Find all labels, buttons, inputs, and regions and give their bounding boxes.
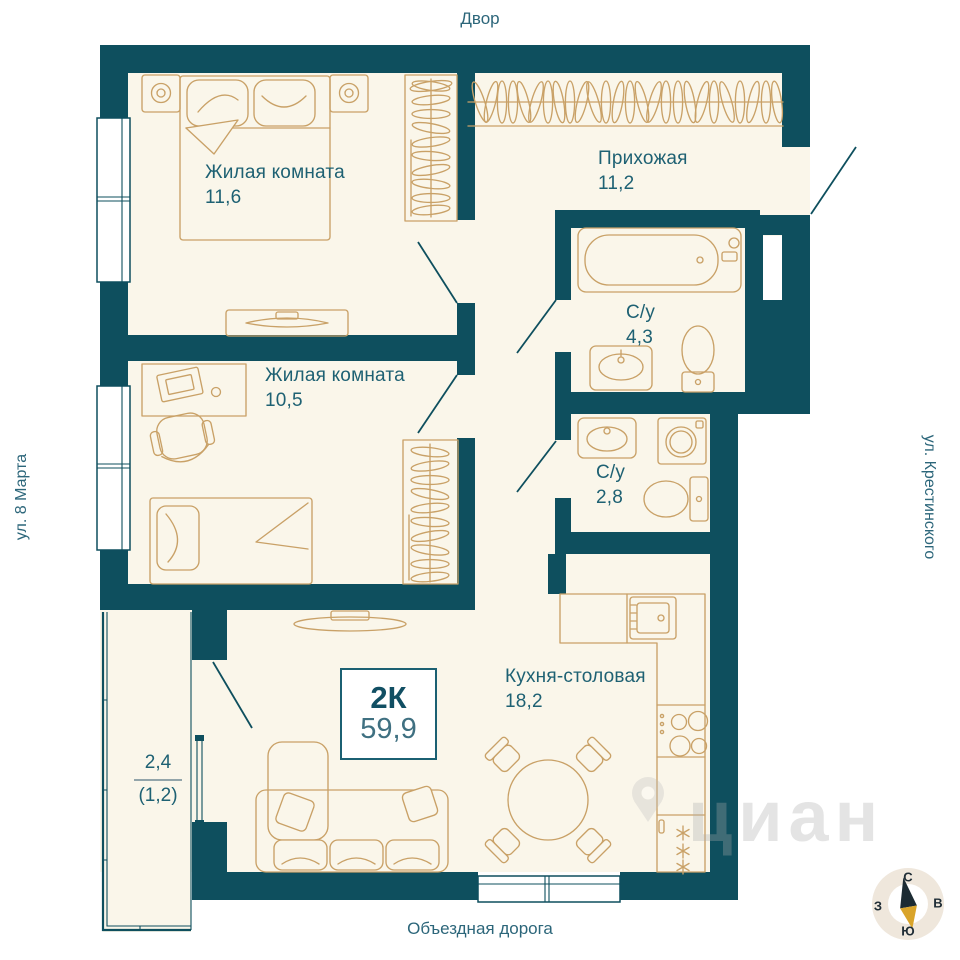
- balcony-area: 2,4: [145, 752, 171, 773]
- room-name: Жилая комната: [265, 363, 405, 388]
- apartment-info-box: 2К 59,9: [340, 668, 437, 760]
- compass-east-label: В: [933, 896, 942, 911]
- room-area: 18,2: [505, 689, 646, 714]
- label-street-left: ул. 8 Марта: [13, 387, 31, 607]
- floor-plan-canvas: [0, 0, 960, 960]
- floor-plan-page: Двор ул. 8 Марта ул. Крестинского Объезд…: [0, 0, 960, 960]
- room-area: 10,5: [265, 388, 405, 413]
- window-bedroom-2: [97, 386, 130, 550]
- room-name: Жилая комната: [205, 160, 345, 185]
- compass-west-label: З: [874, 899, 882, 914]
- compass-north-label: С: [903, 870, 912, 885]
- apartment-total-area: 59,9: [360, 714, 416, 746]
- room-area: 11,6: [205, 185, 345, 210]
- window-kitchen: [478, 876, 620, 902]
- room-name: Кухня-столовая: [505, 664, 646, 689]
- label-courtyard: Двор: [420, 9, 540, 29]
- room-name: С/у: [626, 300, 655, 325]
- label-road-bottom: Объездная дорога: [360, 919, 600, 939]
- dining-table-icon: [508, 760, 588, 840]
- label-street-right: ул. Крестинского: [920, 387, 938, 607]
- compass-south-label: Ю: [901, 924, 914, 939]
- room-area: 4,3: [626, 325, 655, 350]
- room-label-hallway: Прихожая 11,2: [598, 146, 688, 197]
- balcony-area-divider: [134, 779, 182, 781]
- room-label-kitchen: Кухня-столовая 18,2: [505, 664, 646, 715]
- entrance-door: [811, 147, 856, 214]
- balcony-area-reduced: (1,2): [138, 785, 177, 806]
- room-label-bedroom-2: Жилая комната 10,5: [265, 363, 405, 414]
- room-label-bedroom-1: Жилая комната 11,6: [205, 160, 345, 211]
- window-bedroom-1: [97, 118, 130, 282]
- room-name: Прихожая: [598, 146, 688, 171]
- room-label-bathroom-1: С/у 4,3: [626, 300, 655, 351]
- room-area: 2,8: [596, 485, 625, 510]
- room-area: 11,2: [598, 171, 688, 196]
- room-label-bathroom-2: С/у 2,8: [596, 460, 625, 511]
- room-name: С/у: [596, 460, 625, 485]
- apartment-type: 2К: [370, 682, 406, 715]
- room-label-balcony: 2,4 (1,2): [118, 752, 198, 808]
